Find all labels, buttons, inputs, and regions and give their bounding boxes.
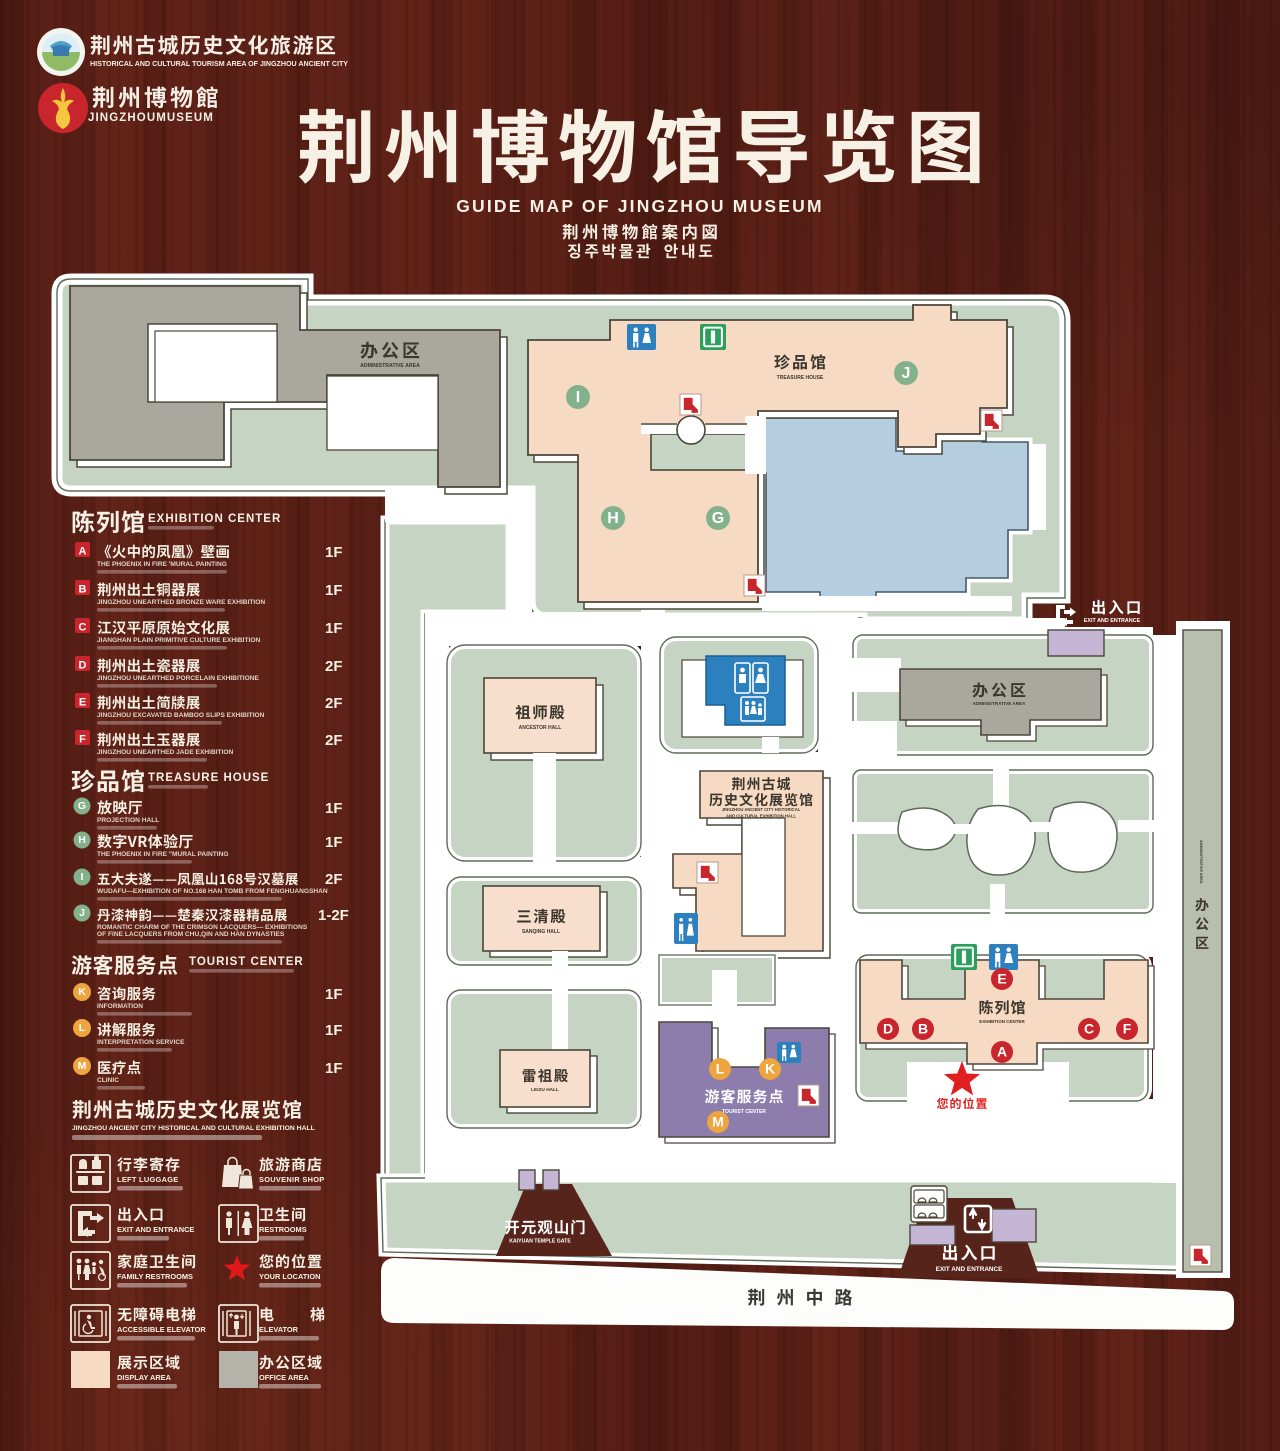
svg-text:M: M	[712, 1114, 724, 1130]
svg-text:FAMILY RESTROOMS: FAMILY RESTROOMS	[117, 1272, 193, 1281]
svg-text:JINGZHOU UNEARTHED PORCELAIN E: JINGZHOU UNEARTHED PORCELAIN EXHIBITIONE	[97, 675, 260, 682]
svg-text:EXIT AND ENTRANCE: EXIT AND ENTRANCE	[117, 1225, 194, 1234]
svg-text:RESTROOMS: RESTROOMS	[259, 1225, 307, 1234]
svg-text:TOURIST CENTER: TOURIST CENTER	[722, 1109, 766, 1115]
svg-text:D: D	[79, 660, 87, 672]
svg-text:H: H	[78, 834, 86, 846]
svg-text:1F: 1F	[325, 1060, 343, 1077]
svg-text:H: H	[607, 510, 619, 527]
svg-text:K: K	[78, 986, 86, 998]
svg-text:AND CULTURAL EXHIBITION HALL: AND CULTURAL EXHIBITION HALL	[726, 814, 797, 819]
svg-text:EXHIBITION CENTER: EXHIBITION CENTER	[148, 513, 281, 525]
svg-text:ELEVATOR: ELEVATOR	[259, 1325, 299, 1334]
svg-text:TREASURE HOUSE: TREASURE HOUSE	[777, 375, 824, 381]
svg-text:INTERPRETATION SERVICE: INTERPRETATION SERVICE	[97, 1039, 185, 1046]
svg-text:A: A	[79, 546, 87, 558]
svg-text:SOUVENIR SHOP: SOUVENIR SHOP	[259, 1175, 325, 1184]
svg-text:SANQING HALL: SANQING HALL	[522, 929, 560, 935]
svg-text:2F: 2F	[325, 658, 343, 675]
svg-text:JINGZHOU EXCAVATED BAMBOO SLIP: JINGZHOU EXCAVATED BAMBOO SLIPS EXHIBITI…	[97, 712, 265, 719]
svg-text:D: D	[883, 1021, 893, 1037]
svg-text:ANCESTOR HALL: ANCESTOR HALL	[519, 725, 562, 731]
svg-text:EXIT AND ENTRANCE: EXIT AND ENTRANCE	[1084, 618, 1141, 624]
svg-text:TOURIST CENTER: TOURIST CENTER	[189, 956, 304, 968]
svg-text:L: L	[716, 1061, 725, 1077]
svg-text:JINGZHOUMUSEUM: JINGZHOUMUSEUM	[88, 112, 214, 124]
svg-text:C: C	[1084, 1021, 1094, 1037]
svg-text:OFFICE AREA: OFFICE AREA	[259, 1373, 309, 1382]
svg-text:EXHIBITION CENTER: EXHIBITION CENTER	[979, 1019, 1025, 1024]
svg-text:CLINIC: CLINIC	[97, 1077, 119, 1084]
svg-text:JINGZHOU ANCIENT CITY HISTORIC: JINGZHOU ANCIENT CITY HISTORICAL	[722, 807, 801, 812]
svg-text:2F: 2F	[325, 732, 343, 749]
svg-text:2F: 2F	[325, 871, 343, 888]
svg-text:THE PHOENIX IN FIRE ″MURAL PAI: THE PHOENIX IN FIRE ″MURAL PAINTING	[97, 851, 229, 858]
svg-text:1F: 1F	[325, 834, 343, 851]
svg-text:ADMINISTRATIVE AREA: ADMINISTRATIVE AREA	[1199, 840, 1203, 884]
svg-text:1F: 1F	[325, 986, 343, 1003]
svg-text:KAIYUAN TEMPLE GATE: KAIYUAN TEMPLE GATE	[509, 1239, 571, 1245]
svg-text:E: E	[997, 971, 1006, 987]
svg-text:WUDAFU—EXHIBITION OF NO.168 HA: WUDAFU—EXHIBITION OF NO.168 HAN TOMB FRO…	[97, 888, 328, 895]
svg-text:2F: 2F	[325, 695, 343, 712]
svg-text:1F: 1F	[325, 582, 343, 599]
svg-text:C: C	[79, 622, 87, 634]
svg-text:ROMANTIC CHARM OF THE CRIMSON: ROMANTIC CHARM OF THE CRIMSON LACQUERS— …	[97, 924, 308, 931]
svg-text:EXIT AND ENTRANCE: EXIT AND ENTRANCE	[936, 1266, 1004, 1273]
svg-text:JINGZHOU UNEARTHED BRONZE WARE: JINGZHOU UNEARTHED BRONZE WARE EXHIBITIO…	[97, 599, 265, 606]
svg-text:J: J	[902, 365, 911, 382]
svg-text:I: I	[576, 389, 580, 406]
svg-text:OF FINE LACQUERS FROM CHU,QIN: OF FINE LACQUERS FROM CHU,QIN AND HAN DY…	[97, 931, 285, 938]
svg-text:GUIDE MAP OF JINGZHOU MUSEUM: GUIDE MAP OF JINGZHOU MUSEUM	[456, 196, 824, 216]
svg-text:ADMINISTRATIVE AREA: ADMINISTRATIVE AREA	[360, 363, 420, 369]
svg-text:YOUR LOCATION: YOUR LOCATION	[259, 1272, 320, 1281]
svg-text:1F: 1F	[325, 620, 343, 637]
svg-text:K: K	[765, 1061, 775, 1077]
svg-text:JINGZHOU ANCIENT CITY HISTORIC: JINGZHOU ANCIENT CITY HISTORICAL AND CUL…	[72, 1125, 315, 1132]
svg-text:B: B	[918, 1021, 928, 1037]
svg-text:1F: 1F	[325, 544, 343, 561]
svg-text:THE PHOENIX IN FIRE 'MURAL PAI: THE PHOENIX IN FIRE 'MURAL PAINTING	[97, 561, 227, 568]
svg-text:I: I	[81, 871, 84, 883]
svg-text:G: G	[78, 800, 86, 812]
svg-text:J: J	[79, 907, 85, 919]
svg-text:JINGZHOU UNEARTHED JADE EXHIBI: JINGZHOU UNEARTHED JADE EXHIBITION	[97, 749, 234, 756]
svg-text:F: F	[79, 734, 86, 746]
svg-text:E: E	[79, 697, 86, 709]
svg-text:1F: 1F	[325, 1022, 343, 1039]
svg-text:1F: 1F	[325, 800, 343, 817]
svg-text:ADMINISTRATIVE AREA: ADMINISTRATIVE AREA	[973, 701, 1027, 706]
svg-text:LEIZU HALL: LEIZU HALL	[531, 1087, 559, 1093]
svg-text:LEFT LUGGAGE: LEFT LUGGAGE	[117, 1175, 179, 1184]
svg-text:A: A	[997, 1044, 1007, 1060]
svg-text:PROJECTION HALL: PROJECTION HALL	[97, 817, 159, 824]
svg-text:ACCESSIBLE ELEVATOR: ACCESSIBLE ELEVATOR	[117, 1325, 206, 1334]
svg-text:1-2F: 1-2F	[318, 907, 349, 924]
svg-text:F: F	[1123, 1021, 1132, 1037]
svg-text:G: G	[712, 510, 724, 527]
svg-text:L: L	[79, 1022, 86, 1034]
svg-text:B: B	[79, 584, 87, 596]
svg-text:INFORMATION: INFORMATION	[97, 1003, 143, 1010]
svg-text:JIANGHAN PLAIN PRIMITIVE CULTU: JIANGHAN PLAIN PRIMITIVE CULTURE EXHIBIT…	[97, 637, 261, 644]
svg-text:HISTORICAL AND CULTURAL TOURIS: HISTORICAL AND CULTURAL TOURISM AREA OF …	[90, 60, 348, 68]
svg-text:M: M	[78, 1060, 87, 1072]
svg-text:TREASURE HOUSE: TREASURE HOUSE	[148, 772, 269, 784]
svg-text:DISPLAY AREA: DISPLAY AREA	[117, 1373, 172, 1382]
